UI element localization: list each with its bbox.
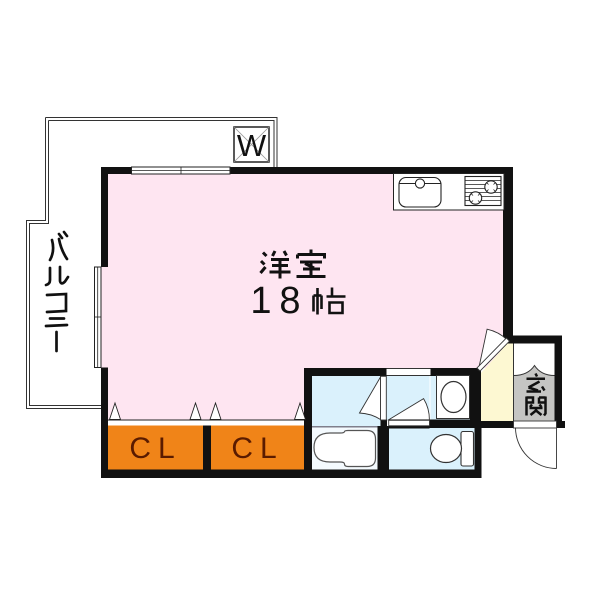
svg-text:1: 1 <box>250 280 271 322</box>
svg-text:CL: CL <box>129 432 181 465</box>
svg-text:8: 8 <box>279 280 300 322</box>
svg-text:W: W <box>237 128 267 163</box>
svg-text:CL: CL <box>231 432 283 465</box>
